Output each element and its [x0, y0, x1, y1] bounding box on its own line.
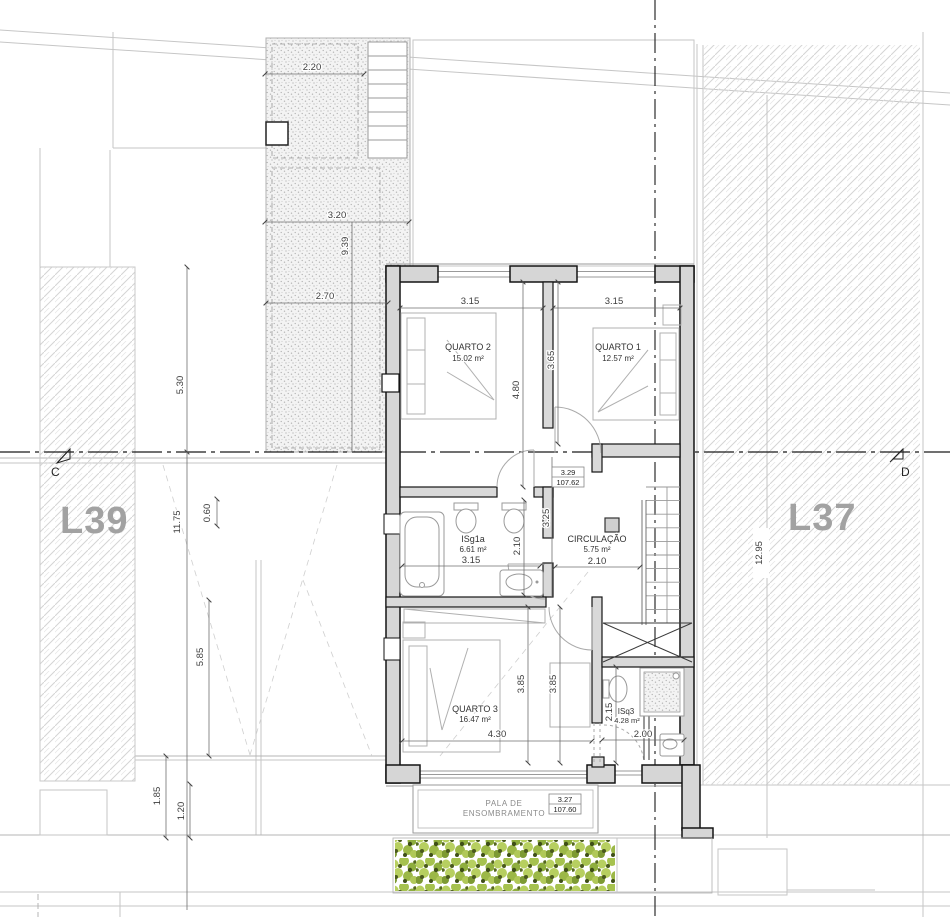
plan-svg: L39 L37 C D 2.20 3.20 2.70 9.39 5.30 11.… [0, 0, 950, 917]
window-q2 [382, 374, 399, 392]
room-area-quarto1: 12.57 m² [602, 354, 634, 363]
dim-isq3-height: 2.15 [604, 703, 615, 722]
dim-2-70: 2.70 [316, 291, 335, 302]
lot-label-left: L39 [60, 500, 128, 542]
dim-2-20: 2.20 [303, 62, 322, 73]
exterior-stair-ladder [368, 42, 407, 158]
furniture [400, 305, 684, 756]
room-name-isg1a: ISg1a [461, 534, 485, 544]
level-marker-lower: 3.27 107.60 [549, 794, 581, 814]
desk-q3 [550, 663, 590, 727]
room-name-quarto1: QUARTO 1 [595, 342, 641, 352]
dim-circulacao-width: 2.10 [588, 556, 607, 567]
dim-isg1a-width: 3.15 [462, 555, 481, 566]
window-isg1a [384, 514, 400, 534]
dim-1-85: 1.85 [152, 787, 163, 806]
dim-q1-width: 3.15 [605, 296, 624, 307]
section-label-c: C [51, 465, 60, 479]
dim-q2-height: 4.80 [511, 381, 522, 400]
stair-void-cross [603, 623, 692, 662]
chimney-box [266, 122, 288, 145]
room-area-quarto2: 15.02 m² [452, 354, 484, 363]
dim-q3-width: 4.30 [488, 729, 507, 740]
dim-isg1a-height: 2.10 [512, 537, 523, 556]
hedge-plants [395, 840, 615, 891]
dim-q1-height: 3.65 [546, 351, 557, 370]
room-area-quarto3: 16.47 m² [459, 715, 491, 724]
dim-9-39: 9.39 [340, 237, 351, 256]
room-area-isg1a: 6.61 m² [459, 545, 486, 554]
dim-12-95: 12.95 [754, 541, 765, 565]
dim-isq3-width: 2.00 [634, 729, 653, 740]
lot-label-right: L37 [788, 497, 856, 539]
level-marker-upper: 3.29 107.62 [552, 467, 584, 487]
section-label-d: D [901, 465, 910, 479]
newel-post [605, 518, 619, 532]
hedge [393, 838, 712, 893]
toilet-isq3 [603, 680, 609, 698]
room-name-circulacao: CIRCULAÇÃO [567, 534, 626, 544]
room-name-quarto2: QUARTO 2 [445, 342, 491, 352]
dim-11-75: 11.75 [172, 510, 183, 533]
dim-3-20: 3.20 [328, 210, 347, 221]
level-lower-abs: 107.60 [554, 805, 577, 814]
dim-5-30: 5.30 [175, 376, 186, 395]
dim-5-85: 5.85 [195, 648, 206, 667]
garden-wall [682, 765, 700, 830]
level-upper-rel: 3.29 [561, 468, 576, 477]
dim-circulacao-height: 3.25 [541, 509, 552, 528]
room-area-circulacao: 5.75 m² [583, 545, 610, 554]
dim-q3-height1: 3.85 [516, 675, 527, 694]
bed-q2 [401, 313, 496, 419]
level-upper-abs: 107.62 [557, 478, 580, 487]
room-name-quarto3: QUARTO 3 [452, 704, 498, 714]
floor-plan-drawing: L39 L37 C D 2.20 3.20 2.70 9.39 5.30 11.… [0, 0, 950, 917]
dim-q3-height2: 3.85 [548, 675, 559, 694]
level-lower-rel: 3.27 [558, 795, 573, 804]
dim-1-20: 1.20 [176, 802, 187, 821]
room-name-isq3: ISq3 [618, 707, 635, 716]
pala-label-line1: PALA DE [486, 799, 523, 808]
dim-0-60: 0.60 [202, 504, 213, 523]
pala-label-line2: ENSOMBRAMENTO [463, 809, 545, 818]
window-q3 [384, 638, 400, 660]
room-area-isq3: 4.28 m² [614, 716, 640, 725]
dim-q2-width: 3.15 [461, 296, 480, 307]
lot-hatch-right [703, 45, 920, 785]
